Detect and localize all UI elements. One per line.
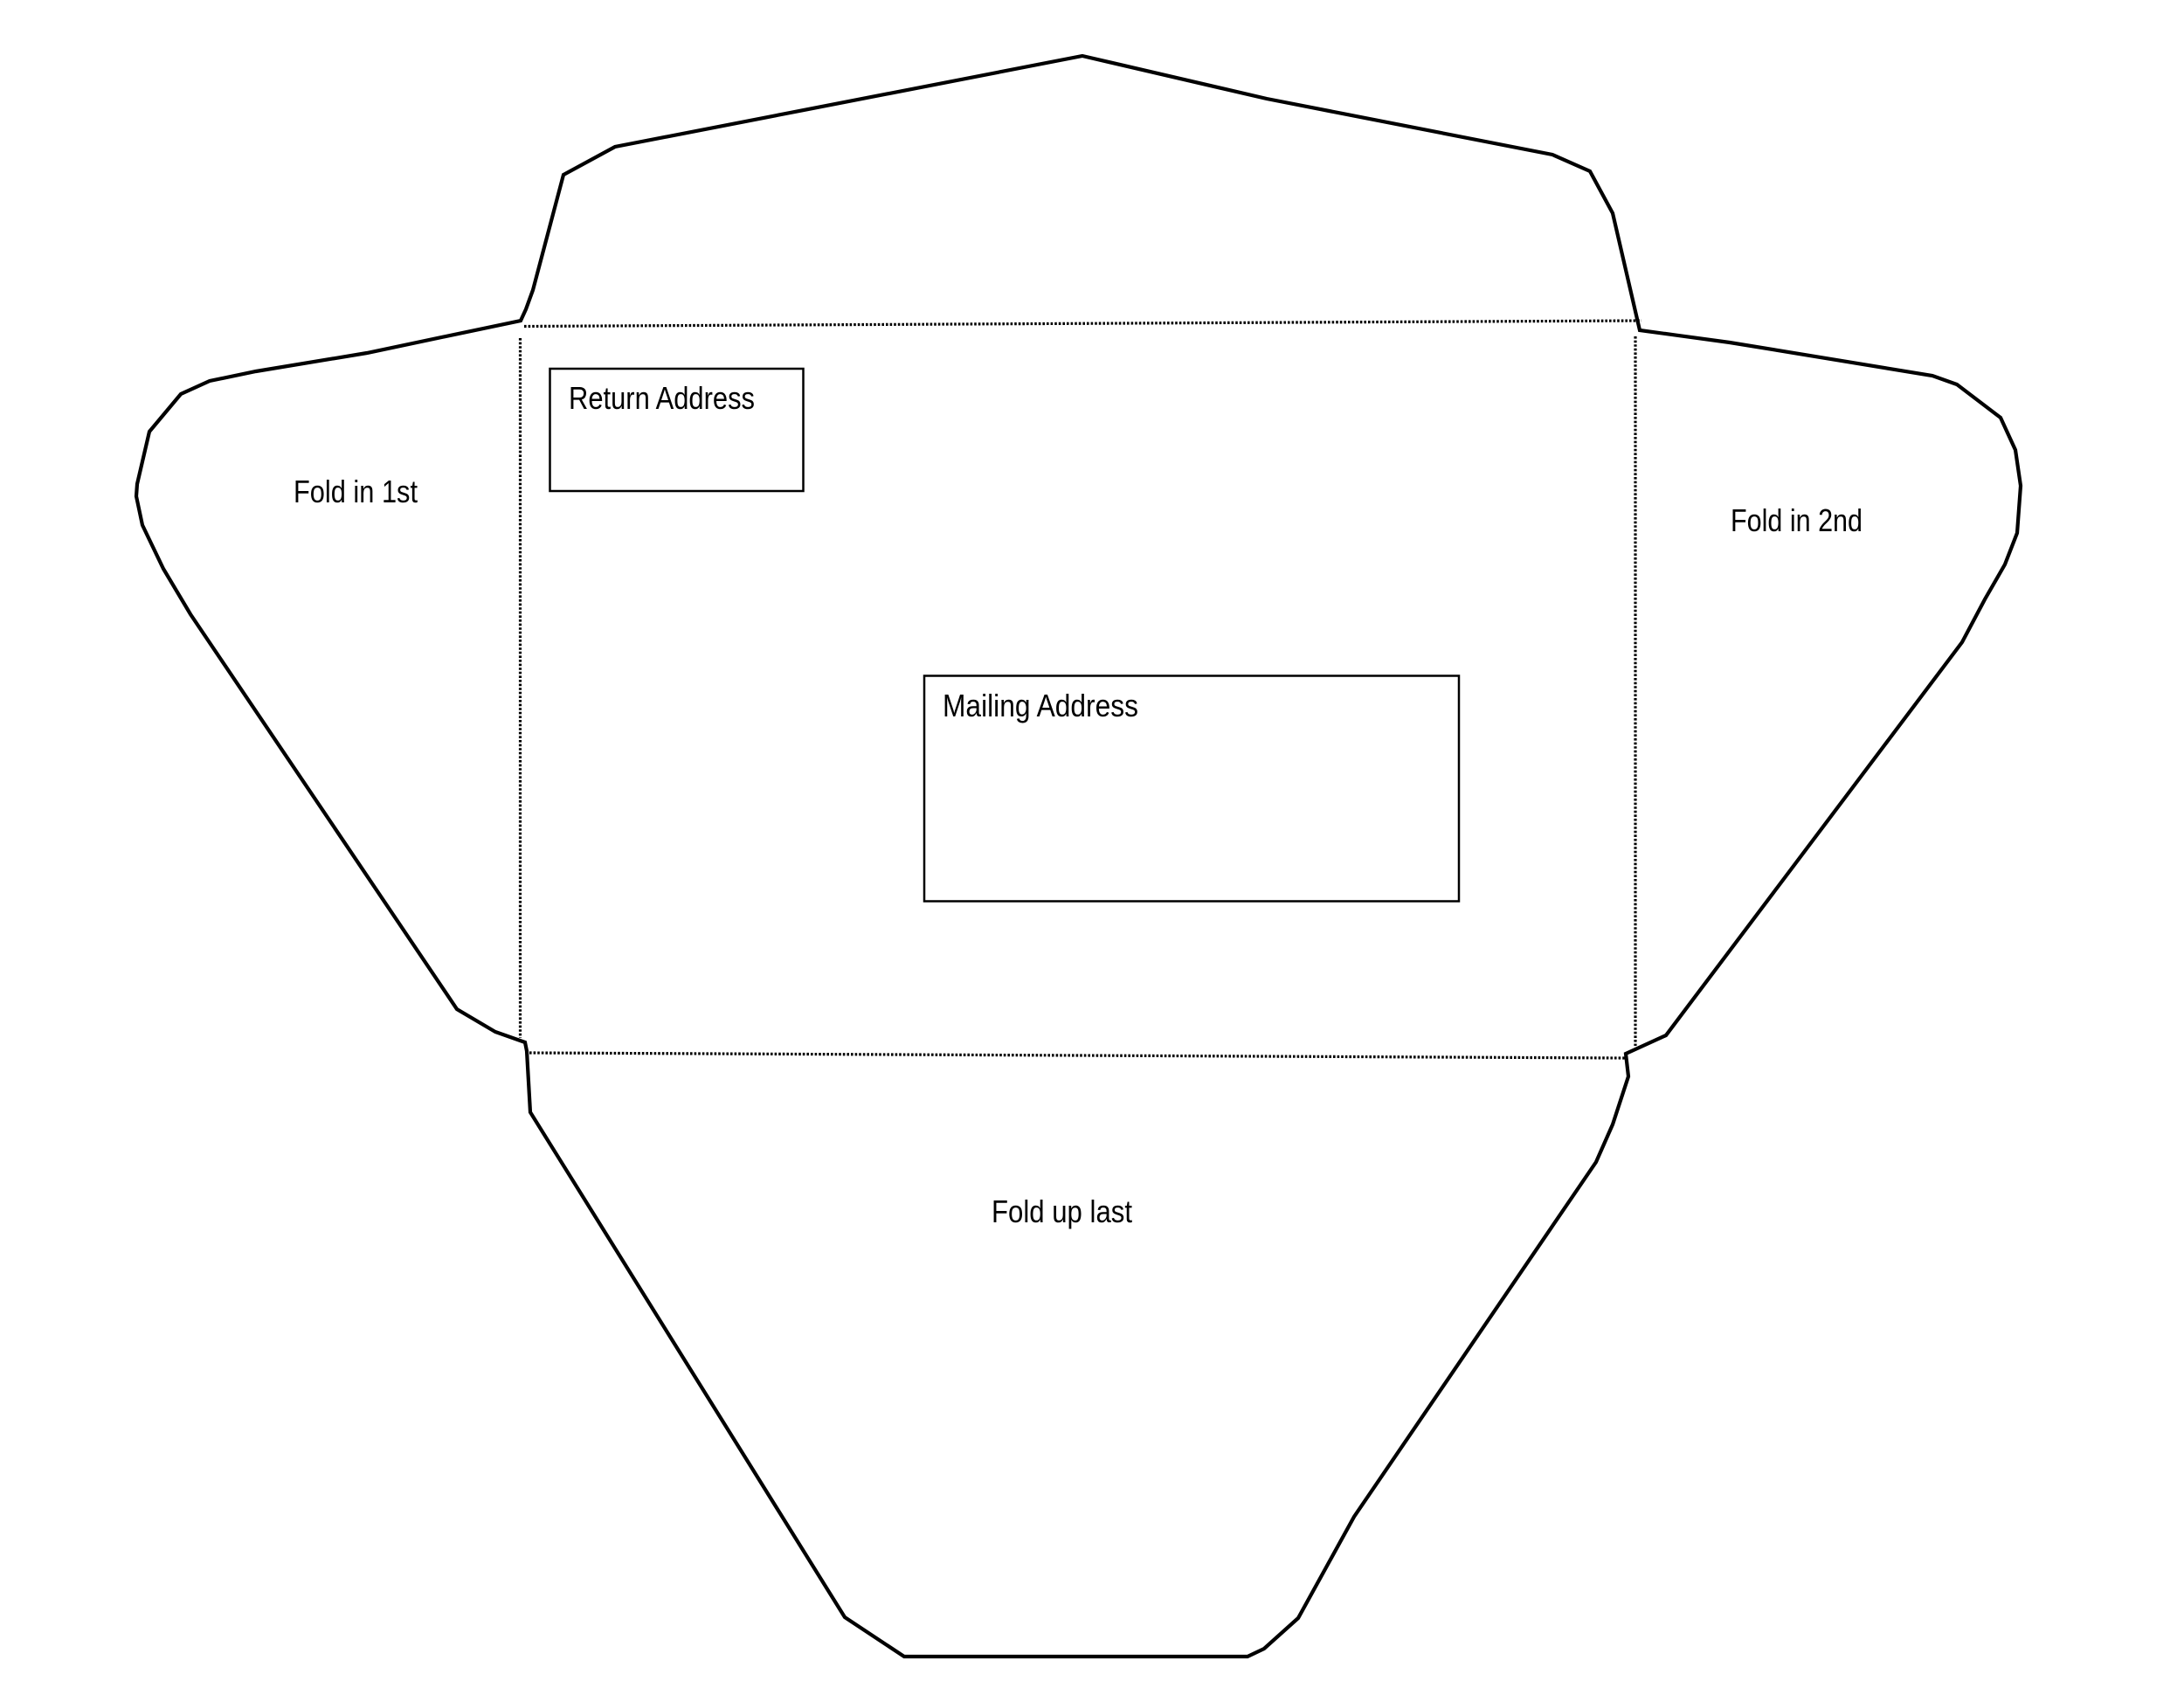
- svg-text:Return Address: Return Address: [569, 380, 755, 416]
- svg-text:Fold up last: Fold up last: [992, 1193, 1132, 1229]
- svg-text:Mailing Address: Mailing Address: [943, 688, 1138, 723]
- svg-text:Fold in 1st: Fold in 1st: [294, 474, 418, 509]
- svg-text:Fold in 2nd: Fold in 2nd: [1731, 502, 1863, 538]
